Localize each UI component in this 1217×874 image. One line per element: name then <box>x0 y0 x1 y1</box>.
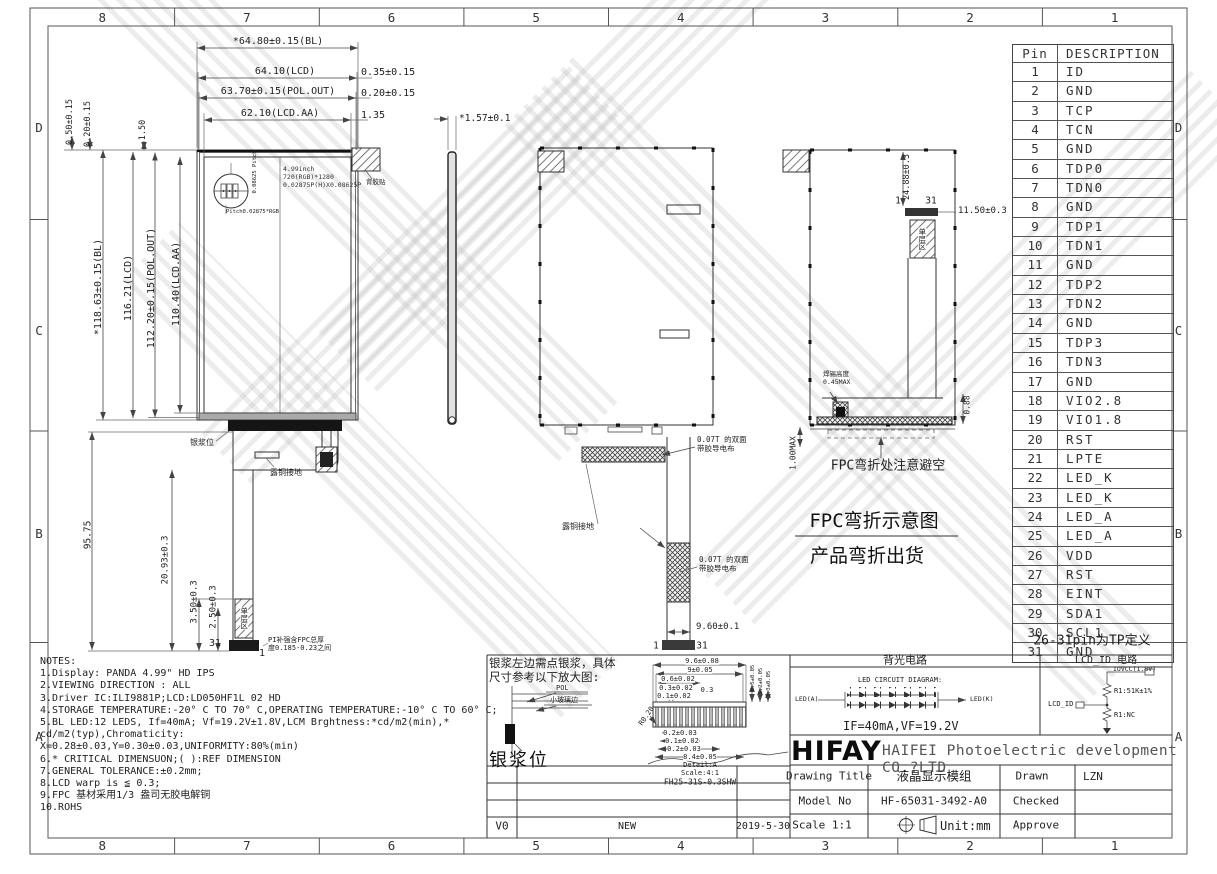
dim-width-pol: 63.70±0.15(POL.OUT) <box>221 86 335 98</box>
table-row: 27RST <box>1013 565 1173 584</box>
dim-width-bl: *64.80±0.15(BL) <box>233 36 323 48</box>
notes-block: NOTES: 1.Display: PANDA 4.99" HD IPS 2.V… <box>40 656 498 815</box>
offset-pol: 0.20±0.15 <box>361 88 415 100</box>
pin-description: EINT <box>1058 585 1173 603</box>
pin-table-header: Pin DESCRIPTION <box>1013 45 1173 62</box>
pin-number: 22 <box>1013 469 1058 487</box>
iovcc-label: IOVCC(1.8V) <box>1113 666 1156 674</box>
pin-description: TCP <box>1058 102 1173 120</box>
table-row: 4TCN <box>1013 120 1173 139</box>
pin-number: 23 <box>1013 489 1058 507</box>
pin-description: LED_A <box>1058 527 1173 545</box>
pin-description: VDD <box>1058 547 1173 565</box>
table-row: 10TDN1 <box>1013 236 1173 255</box>
pin-table-footer: 26-31pin为TP定义 <box>1033 633 1150 648</box>
pin-description: SDA1 <box>1058 605 1173 623</box>
checked-label: Checked <box>1013 796 1059 809</box>
detail-dim-b0: 0.2±0.03 <box>663 729 697 737</box>
revision-id: V0 <box>495 821 508 834</box>
pin-number: 29 <box>1013 605 1058 623</box>
offset-aa: 1.35 <box>361 110 385 122</box>
back-view <box>538 148 713 650</box>
table-row: 18VIO2.8 <box>1013 391 1173 410</box>
pin-number: 18 <box>1013 392 1058 410</box>
dim-fpc-length: 95.75 <box>82 521 93 550</box>
pin31-label-bend: 31 <box>925 195 936 206</box>
table-row: 8GND <box>1013 197 1173 216</box>
zone-label: 2 <box>966 10 974 25</box>
detail-dim-b2: 0.2±0.03 <box>667 745 701 753</box>
table-row: 15TDP3 <box>1013 333 1173 352</box>
table-row: 17GND <box>1013 372 1173 391</box>
table-row: 25LED_A <box>1013 526 1173 545</box>
pin-number: 12 <box>1013 276 1058 294</box>
single-layer-label-bend: 单层区 <box>918 228 926 251</box>
pin-number: 16 <box>1013 353 1058 371</box>
dim-height-lcd: 116.21(LCD) <box>123 255 135 321</box>
dim-width-lcd: 64.10(LCD) <box>255 66 315 78</box>
zone-label: 4 <box>677 10 685 25</box>
dim-back-gap: 0.88 <box>962 395 971 414</box>
pin-number: 6 <box>1013 160 1058 178</box>
drawn-label: Drawn <box>1015 771 1048 784</box>
pin-description: TDP3 <box>1058 334 1173 352</box>
table-row: 20RST <box>1013 430 1173 449</box>
pin-description: TDN2 <box>1058 295 1173 313</box>
company-logo: HIFAY <box>791 736 882 768</box>
pol-label: POL <box>556 684 569 692</box>
pin-description: TDP2 <box>1058 276 1173 294</box>
zone-label: B <box>1175 526 1183 541</box>
lcdid-circuit <box>1076 669 1154 734</box>
pin-number: 25 <box>1013 527 1058 545</box>
side-view <box>434 116 456 424</box>
offset-lcd: 0.35±0.15 <box>361 67 415 79</box>
r1-top-label: R1:51K±1% <box>1114 687 1152 695</box>
pitch-vertical-label: 0.08625 Pitch <box>252 150 258 193</box>
table-row: 3TCP <box>1013 101 1173 120</box>
table-row: 14GND <box>1013 313 1173 332</box>
pin-number: 5 <box>1013 140 1058 158</box>
detail-dim-s0: 0.5±0.05 <box>750 665 756 692</box>
table-row: 24LED_A <box>1013 507 1173 526</box>
drawing-sheet: 87654321 87654321 DCBA DCBA *64.80±0.15(… <box>0 0 1217 874</box>
drawn-value: LZN <box>1083 771 1103 784</box>
silver-paste-label: 银浆位 <box>190 438 214 447</box>
front-view <box>64 42 380 651</box>
scale-label: Scale 1:1 <box>792 820 852 833</box>
model-no-label: Model No <box>799 796 852 809</box>
detail-caption-2: Scale:4:1 <box>681 769 719 777</box>
dim-topleft-1: 0.50±0.15 <box>65 99 75 145</box>
detail-dim-t5: 0.3 <box>701 686 714 694</box>
table-row: 11GND <box>1013 255 1173 274</box>
led-if-vf: IF=40mA,VF=19.2V <box>843 719 959 733</box>
detail-dim-t1: 9±0.05 <box>687 666 712 674</box>
pin-description: GND <box>1058 373 1173 391</box>
dim-tail-3: 2.50±0.3 <box>209 585 220 628</box>
copper-ground-label: 露铜接地 <box>270 468 302 477</box>
zone-label: 5 <box>532 10 540 25</box>
pin-number: 7 <box>1013 179 1058 197</box>
pin-description: ID <box>1058 63 1173 81</box>
pin-number: 15 <box>1013 334 1058 352</box>
pin-description: TDN3 <box>1058 353 1173 371</box>
pin-number: 20 <box>1013 431 1058 449</box>
zone-label: 6 <box>388 838 396 853</box>
pin-description: GND <box>1058 82 1173 100</box>
pin31-label: 31 <box>209 638 221 650</box>
pin-number: 11 <box>1013 256 1058 274</box>
pin-description: LED_K <box>1058 469 1173 487</box>
table-row: 9TDP1 <box>1013 217 1173 236</box>
pin-number: 9 <box>1013 218 1058 236</box>
detail-caption-1: Detail:A <box>683 761 717 769</box>
led-circuit <box>818 687 966 710</box>
zone-label: 8 <box>99 10 107 25</box>
table-row: 13TDN2 <box>1013 294 1173 313</box>
led-cathode-label: LED(K) <box>970 696 993 704</box>
pi-stiffener-note: PI补强含FPC总厚 度0.185-0.23之间 <box>268 636 331 653</box>
zone-label: D <box>35 120 43 135</box>
pin-number: 28 <box>1013 585 1058 603</box>
table-row: 29SDA1 <box>1013 604 1173 623</box>
table-row: 23LED_K <box>1013 488 1173 507</box>
screen-info: 4.99inch 720(RGB)*1280 0.02875P(H)X0.086… <box>283 165 361 189</box>
copper-ground-label-back: 露铜接地 <box>562 522 594 531</box>
zone-label: 1 <box>1111 10 1119 25</box>
detail-dim-b3: 8.4±0.05 <box>683 753 717 761</box>
table-row: 26VDD <box>1013 546 1173 565</box>
table-row: 5GND <box>1013 139 1173 158</box>
detail-caption-3: FH25-31S-0.3SHW <box>664 777 736 786</box>
description-col-header: DESCRIPTION <box>1058 45 1173 62</box>
pin-description: TDP0 <box>1058 160 1173 178</box>
pin-description: VIO2.8 <box>1058 392 1173 410</box>
fpc-avoid-label: FPC弯折处注意避空 <box>831 458 945 473</box>
pin-description: TDN0 <box>1058 179 1173 197</box>
lcd-id-label: LCD_ID <box>1048 700 1073 708</box>
pin-number: 3 <box>1013 102 1058 120</box>
dim-height-pol: 112.20±0.15(POL.OUT) <box>146 228 158 348</box>
table-row: 16TDN3 <box>1013 352 1173 371</box>
unit-label: Unit:mm <box>940 819 991 833</box>
pin-number: 19 <box>1013 411 1058 429</box>
projection-symbol <box>897 816 936 834</box>
model-no-value: HF-65031-3492-A0 <box>881 796 987 809</box>
solder-height-label: 焊锡高度 0.45MAX <box>823 371 850 386</box>
zone-label: 4 <box>677 838 685 853</box>
pin1-label-back: 1 <box>653 640 659 651</box>
dim-thickness: *1.57±0.1 <box>459 113 510 124</box>
pin-number: 26 <box>1013 547 1058 565</box>
zone-label: C <box>1175 323 1183 338</box>
pin-number: 10 <box>1013 237 1058 255</box>
dim-fold: 24.88±0.3 <box>902 154 912 200</box>
glass-edge-label: 小玻璃边 <box>550 696 578 704</box>
dim-tail-2: 3.50±0.3 <box>190 580 201 623</box>
table-row: 12TDP2 <box>1013 275 1173 294</box>
pin-number: 2 <box>1013 82 1058 100</box>
detail-dim-t0: 9.6±0.08 <box>685 657 719 665</box>
detail-dim-t2: 0.6±0.02 <box>661 675 695 683</box>
zone-columns-top: 87654321 <box>30 8 1187 26</box>
dim-height-aa: 110.40(LCD.AA) <box>171 242 183 326</box>
dim-height-bl: *118.63±0.15(BL) <box>93 239 105 335</box>
dim-tail-1: 20.93±0.3 <box>161 536 172 585</box>
table-row: 2GND <box>1013 81 1173 100</box>
pin1-label-bend: 1 <box>895 195 901 206</box>
table-row: 1ID <box>1013 62 1173 81</box>
revision-date: 2019-5-30 <box>736 821 790 833</box>
pin-description: VIO1.8 <box>1058 411 1173 429</box>
drawing-title-label: Drawing Title <box>786 771 872 784</box>
pin-number: 8 <box>1013 198 1058 216</box>
zone-label: 7 <box>243 10 251 25</box>
dim-connector-width: 11.50±0.3 <box>958 206 1007 217</box>
zone-label: 2 <box>966 838 974 853</box>
pin-number: 21 <box>1013 450 1058 468</box>
zone-label: 7 <box>243 838 251 853</box>
table-row: 6TDP0 <box>1013 159 1173 178</box>
pin-description: GND <box>1058 314 1173 332</box>
pin-description: GND <box>1058 256 1173 274</box>
pin-number: 24 <box>1013 508 1058 526</box>
pin-description: TDP1 <box>1058 218 1173 236</box>
zone-label: 1 <box>1111 838 1119 853</box>
bend-title-1: FPC弯折示意图 <box>809 510 938 532</box>
bend-view <box>783 150 963 536</box>
detail-dim-b1: 0.1±0.02 <box>665 737 699 745</box>
silver-position-label: 银浆位 <box>489 750 549 771</box>
dim-connector: 9.60±0.1 <box>696 622 739 633</box>
corner-tape-label: 背胶贴 <box>366 179 386 187</box>
table-row: 22LED_K <box>1013 468 1173 487</box>
zone-label: C <box>35 323 43 338</box>
r1-bottom-label: R1:NC <box>1114 711 1135 719</box>
pin-description: LED_K <box>1058 489 1173 507</box>
table-row: 7TDN0 <box>1013 178 1173 197</box>
cloth-label-2: 0.07T 的双面 带胶导电布 <box>699 556 749 574</box>
pin-number: 1 <box>1013 63 1058 81</box>
zone-label: 3 <box>822 838 830 853</box>
detail-dim-s1: 1.2±0.05 <box>758 668 764 695</box>
pin31-label-back: 31 <box>696 640 707 651</box>
pin-description: GND <box>1058 140 1173 158</box>
zone-label: 6 <box>388 10 396 25</box>
detail-dim-s2: 2.3±0.05 <box>766 671 772 698</box>
detail-dim-t3: 0.3±0.02 <box>659 684 693 692</box>
zone-label: A <box>1175 729 1183 744</box>
pin-number: 14 <box>1013 314 1058 332</box>
pin-number: 4 <box>1013 121 1058 139</box>
pin-number: 27 <box>1013 566 1058 584</box>
pitch-horizontal-label: Pitch0.02875*RGB <box>226 209 279 215</box>
silver-note: 银浆左边需点银浆，具体 尺寸参考以下放大图: <box>489 657 616 684</box>
pin-description: RST <box>1058 566 1173 584</box>
table-row: 28EINT <box>1013 584 1173 603</box>
dim-topleft-3: 1.50 <box>138 120 148 140</box>
detail-dim-t4: 0.1±0.02 <box>657 692 691 700</box>
table-row: 21LPTE <box>1013 449 1173 468</box>
led-anode-label: LED(A) <box>795 696 818 704</box>
pin-description: LPTE <box>1058 450 1173 468</box>
revision-desc: NEW <box>618 821 636 833</box>
cloth-label-1: 0.07T 的双面 带胶导电布 <box>697 436 747 454</box>
dim-width-aa: 62.10(LCD.AA) <box>241 108 319 120</box>
pin-number: 13 <box>1013 295 1058 313</box>
dim-max-height: 1.00MAX <box>788 436 797 470</box>
zone-label: 3 <box>822 10 830 25</box>
pin-number: 17 <box>1013 373 1058 391</box>
pin-table: Pin DESCRIPTION 1ID2GND3TCP4TCN5GND6TDP0… <box>1012 44 1174 663</box>
zone-columns-bottom: 87654321 <box>30 836 1187 854</box>
pin-description: TDN1 <box>1058 237 1173 255</box>
pin-description: TCN <box>1058 121 1173 139</box>
zone-label: B <box>35 526 43 541</box>
bend-title-2: 产品弯折出货 <box>810 545 924 567</box>
zone-label: D <box>1175 120 1183 135</box>
zone-label: 5 <box>532 838 540 853</box>
pin-description: LED_A <box>1058 508 1173 526</box>
backlight-header: 背光电路 <box>883 655 927 668</box>
zone-label: 8 <box>99 838 107 853</box>
pin-col-header: Pin <box>1013 45 1058 62</box>
pin-description: RST <box>1058 431 1173 449</box>
approve-label: Approve <box>1013 820 1059 833</box>
single-layer-label: 单层区 <box>240 607 248 630</box>
pin-description: GND <box>1058 198 1173 216</box>
silver-sketch <box>505 686 592 756</box>
drawing-title-value: 液晶显示模组 <box>896 770 971 785</box>
dim-topleft-2: 0.20±0.15 <box>83 101 93 147</box>
table-row: 19VIO1.8 <box>1013 410 1173 429</box>
led-diagram-label: LED CIRCUIT DIAGRAM: <box>858 676 942 684</box>
